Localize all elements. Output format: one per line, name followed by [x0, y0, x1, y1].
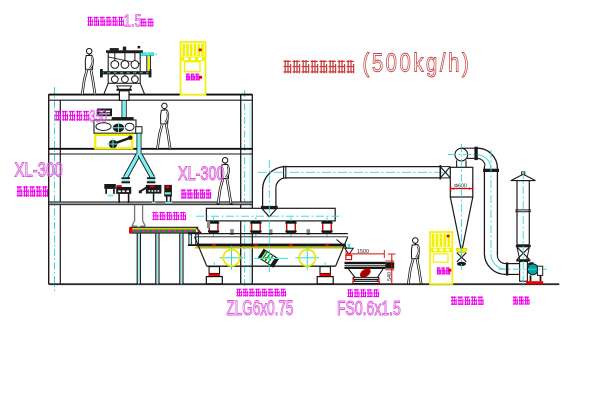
svg-text:350: 350	[90, 107, 108, 126]
svg-text:Φ600: Φ600	[454, 184, 467, 190]
svg-text:(500kg/h): (500kg/h)	[363, 48, 472, 77]
svg-text:1.5: 1.5	[124, 12, 142, 31]
svg-text:540: 540	[387, 272, 393, 281]
svg-text:XL-300: XL-300	[15, 158, 63, 181]
svg-text:ZLG6x0.75: ZLG6x0.75	[227, 296, 294, 320]
svg-text:1500: 1500	[357, 249, 369, 255]
svg-text:FS0.6x1.5: FS0.6x1.5	[337, 296, 401, 319]
svg-text:XL-300: XL-300	[178, 162, 225, 185]
